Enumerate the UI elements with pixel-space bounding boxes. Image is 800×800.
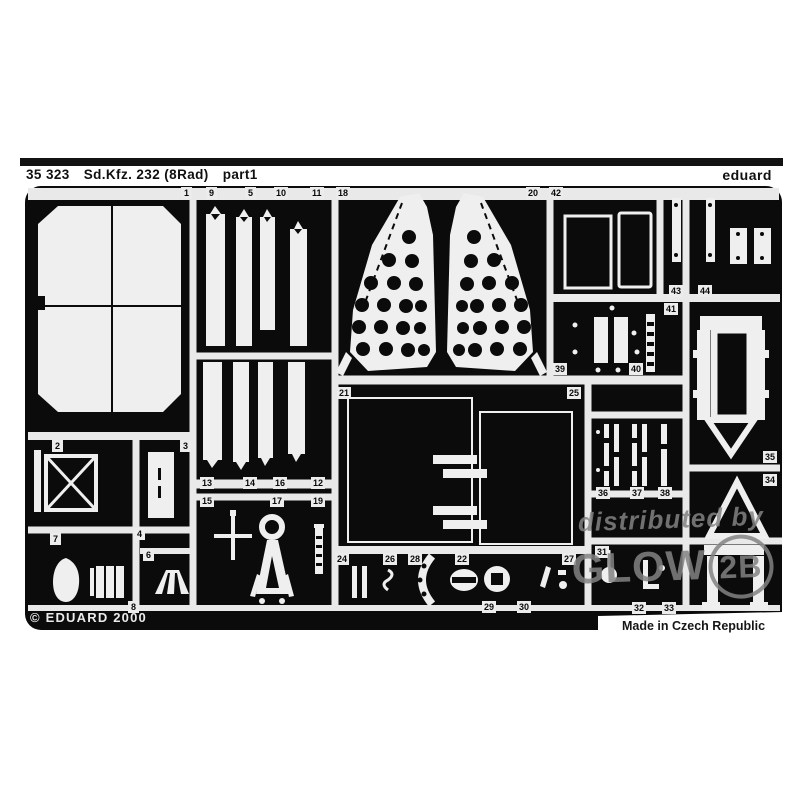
product-photo-page: 35 323 Sd.Kfz. 232 (8Rad) part1 eduard xyxy=(0,0,800,800)
part-number-label: 37 xyxy=(630,487,644,499)
part-number-label: 41 xyxy=(664,303,678,315)
part-19-cylinder xyxy=(314,524,324,574)
part-number-label: 2 xyxy=(52,440,63,452)
part-number-label: 15 xyxy=(200,495,214,507)
part-number-label: 32 xyxy=(632,602,646,614)
fret-artwork: .p{fill:#efefef;} .ps{fill:none;stroke:#… xyxy=(0,0,800,800)
part-number-label: 9 xyxy=(206,187,217,199)
part-number-label: 27 xyxy=(562,553,576,565)
part-number-label: 22 xyxy=(455,553,469,565)
made-in-text: Made in Czech Republic xyxy=(622,619,765,633)
part-number-label: 5 xyxy=(245,187,256,199)
part-number-label: 28 xyxy=(408,553,422,565)
part-number-label: 26 xyxy=(383,553,397,565)
part-number-label: 38 xyxy=(658,487,672,499)
part-number-label: 31 xyxy=(595,546,609,558)
part-number-label: 29 xyxy=(482,601,496,613)
part-number-label: 12 xyxy=(311,477,325,489)
part-number-label: 11 xyxy=(310,187,324,199)
part-number-label: 35 xyxy=(763,451,777,463)
part-number-label: 42 xyxy=(549,187,563,199)
part-number-label: 13 xyxy=(200,477,214,489)
part-number-label: 24 xyxy=(335,553,349,565)
part-number-label: 34 xyxy=(763,474,777,486)
part-number-label: 20 xyxy=(526,187,540,199)
part-1-hatch-panel xyxy=(38,206,181,412)
part-number-label: 36 xyxy=(596,487,610,499)
part-number-label: 25 xyxy=(567,387,581,399)
part-number-label: 7 xyxy=(50,533,61,545)
part-number-label: 39 xyxy=(553,363,567,375)
part-number-label: 33 xyxy=(662,602,676,614)
part-number-label: 10 xyxy=(274,187,288,199)
part-number-label: 17 xyxy=(270,495,284,507)
part-3-plate xyxy=(148,452,174,518)
part-number-label: 1 xyxy=(181,187,192,199)
part-number-label: 19 xyxy=(311,495,325,507)
part-number-label: 4 xyxy=(134,528,145,540)
part-number-label: 3 xyxy=(180,440,191,452)
part-number-label: 6 xyxy=(143,549,154,561)
part-number-label: 40 xyxy=(629,363,643,375)
part-number-label: 30 xyxy=(517,601,531,613)
part-number-label: 43 xyxy=(669,285,683,297)
part-number-label: 16 xyxy=(273,477,287,489)
part-number-label: 14 xyxy=(243,477,257,489)
part-number-label: 44 xyxy=(698,285,712,297)
part-number-label: 18 xyxy=(336,187,350,199)
copyright-text: © EDUARD 2000 xyxy=(30,610,147,625)
part-number-label: 21 xyxy=(337,387,351,399)
